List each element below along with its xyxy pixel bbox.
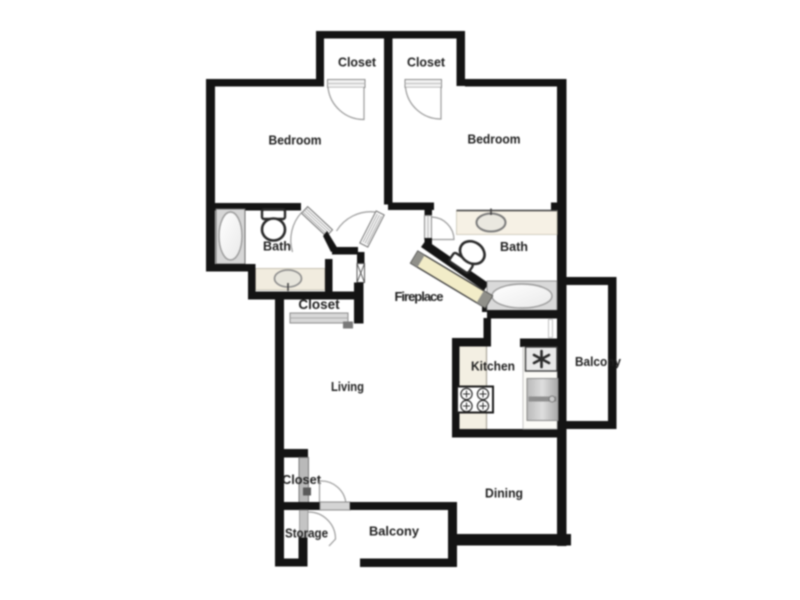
svg-text:Closet: Closet — [338, 55, 377, 70]
svg-text:Fireplace: Fireplace — [395, 289, 444, 304]
svg-text:Kitchen: Kitchen — [471, 359, 515, 374]
svg-text:Bath: Bath — [500, 239, 528, 254]
svg-text:Closet: Closet — [298, 297, 340, 312]
svg-text:Bath: Bath — [263, 239, 291, 254]
svg-text:Bedroom: Bedroom — [468, 132, 521, 147]
svg-text:Dining: Dining — [485, 486, 523, 501]
svg-text:Closet: Closet — [282, 472, 322, 487]
svg-text:Balcony: Balcony — [369, 524, 420, 539]
svg-text:Balcony: Balcony — [575, 354, 622, 369]
svg-text:Closet: Closet — [407, 55, 446, 70]
svg-text:Bedroom: Bedroom — [269, 133, 322, 148]
svg-text:Living: Living — [331, 379, 364, 394]
